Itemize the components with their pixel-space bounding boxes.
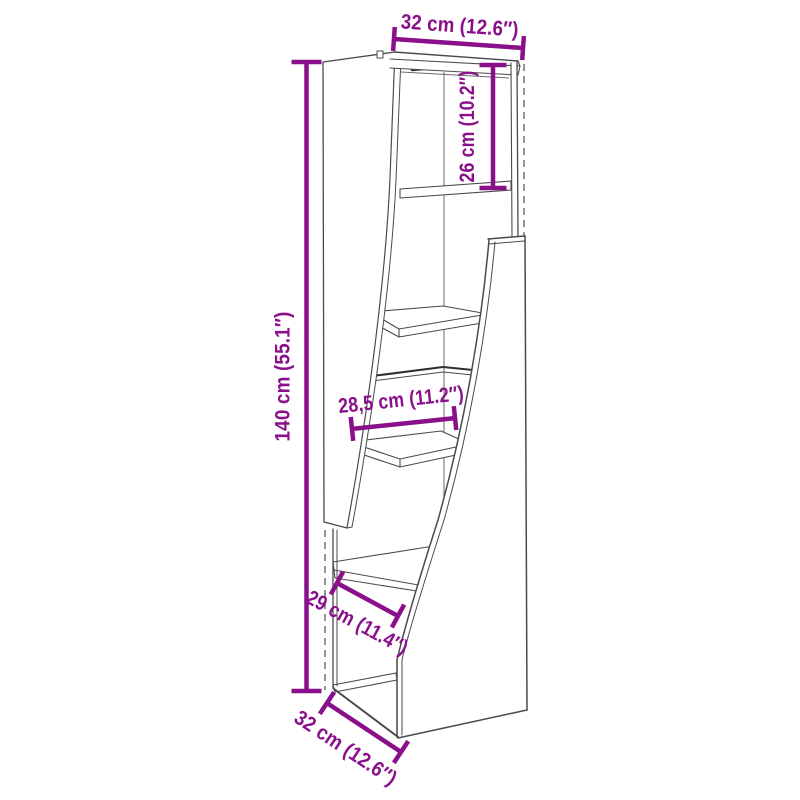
dimension-upper-height: 26 cm (10.2″) <box>456 65 507 188</box>
dimension-label-upper-height: 26 cm (10.2″) <box>456 71 479 183</box>
furniture-dimension-diagram: 32 cm (12.6″) 26 cm (10.2″) 140 cm (55.1… <box>0 0 800 800</box>
dimension-top-width: 32 cm (12.6″) <box>393 10 525 60</box>
top-corner-fitting <box>377 51 383 58</box>
bottom-panel <box>333 673 397 692</box>
dimension-label-top-width: 32 cm (12.6″) <box>400 10 519 41</box>
dimension-label-bottom-depth: 32 cm (12.6″) <box>290 706 401 790</box>
dimension-label-total-height: 140 cm (55.1″) <box>272 312 295 442</box>
diagram-canvas: 32 cm (12.6″) 26 cm (10.2″) 140 cm (55.1… <box>0 0 800 800</box>
upper-box-right-edge <box>511 62 518 236</box>
